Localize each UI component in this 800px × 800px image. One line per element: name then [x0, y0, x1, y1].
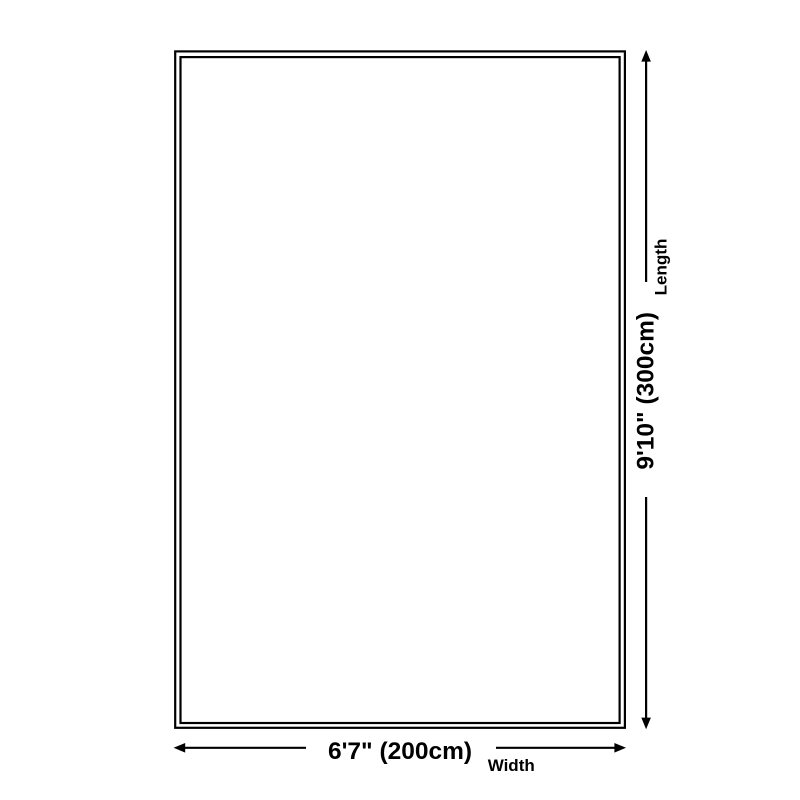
svg-text:Width: Width: [488, 756, 535, 775]
svg-text:6'7" (200cm): 6'7" (200cm): [328, 738, 472, 765]
svg-text:Length: Length: [652, 239, 671, 296]
svg-text:9'10" (300cm): 9'10" (300cm): [632, 312, 659, 470]
